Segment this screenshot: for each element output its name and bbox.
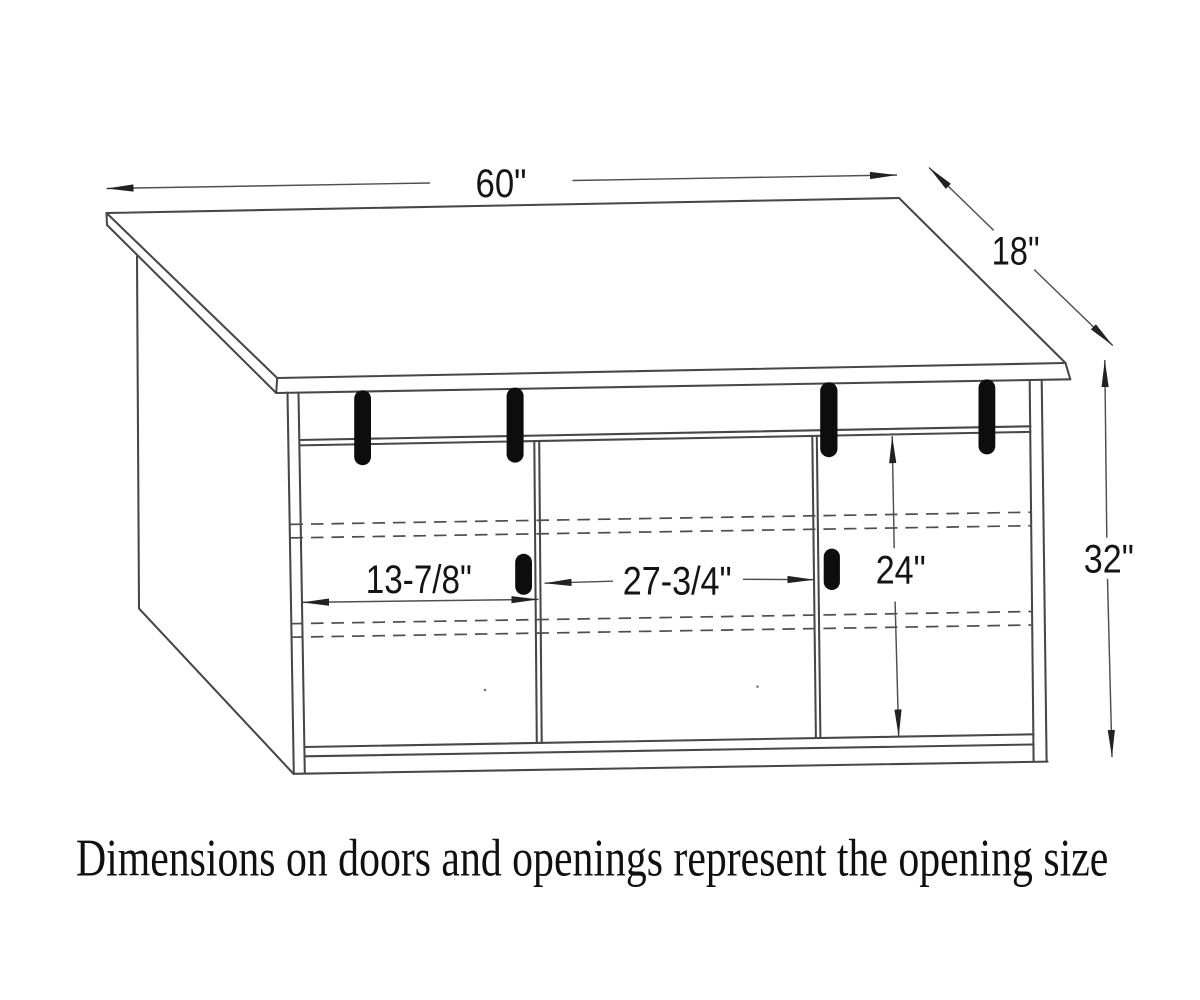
svg-text:60": 60" <box>476 162 527 206</box>
svg-text:24": 24" <box>876 548 926 592</box>
svg-text:13-7/8": 13-7/8" <box>366 558 472 602</box>
svg-text:27-3/4": 27-3/4" <box>623 560 732 604</box>
svg-text:32": 32" <box>1084 538 1134 582</box>
svg-text:18": 18" <box>992 230 1040 274</box>
svg-text:Dimensions on doors and openin: Dimensions on doors and openings represe… <box>76 830 1108 888</box>
